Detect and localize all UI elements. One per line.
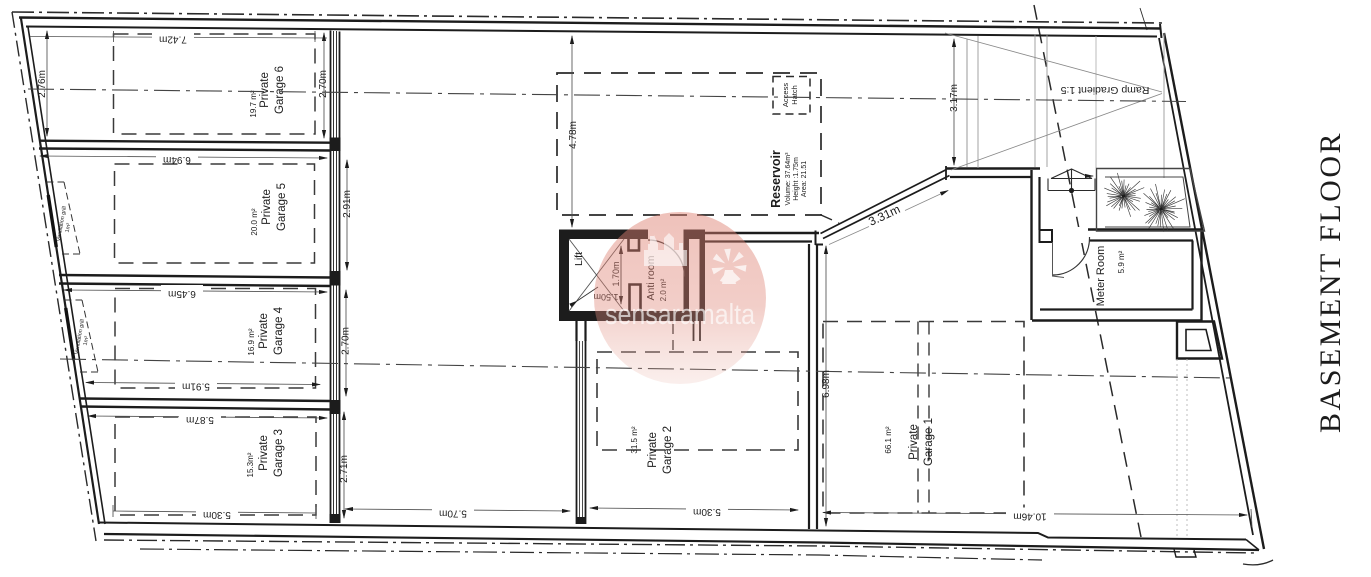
svg-text:66.1 m²: 66.1 m² [884, 426, 893, 453]
svg-text:2.91m: 2.91m [342, 190, 353, 218]
svg-text:Garage 6: Garage 6 [274, 66, 286, 114]
svg-text:Private: Private [261, 189, 273, 225]
svg-text:5.9 m²: 5.9 m² [1117, 250, 1126, 273]
svg-text:Garage 4: Garage 4 [273, 306, 285, 355]
svg-text:Access: Access [781, 83, 790, 107]
svg-text:10.46m: 10.46m [1013, 511, 1046, 522]
svg-text:16.9 m²: 16.9 m² [247, 328, 256, 355]
svg-text:2.70m: 2.70m [341, 327, 352, 355]
svg-text:6.45m: 6.45m [168, 288, 196, 299]
svg-text:Private: Private [908, 424, 920, 460]
svg-text:3.17m: 3.17m [949, 84, 960, 112]
svg-text:19.7 m²: 19.7 m² [249, 90, 258, 117]
svg-text:Lift: Lift [573, 252, 585, 266]
svg-text:Area: 21.51: Area: 21.51 [801, 161, 808, 197]
svg-text:Height :1.75m: Height :1.75m [793, 157, 800, 201]
svg-text:2.76m: 2.76m [37, 70, 48, 98]
svg-text:15.3m²: 15.3m² [246, 452, 255, 477]
svg-text:4.78m: 4.78m [568, 121, 579, 149]
svg-text:Ramp Gradient 1:5: Ramp Gradient 1:5 [1060, 84, 1149, 96]
svg-text:Garage 2: Garage 2 [662, 426, 674, 474]
svg-text:Private: Private [647, 432, 659, 468]
svg-text:5.30m: 5.30m [203, 509, 231, 520]
svg-text:Volume: 37.64m³: Volume: 37.64m³ [785, 152, 792, 206]
svg-text:6.94m: 6.94m [163, 154, 191, 165]
svg-text:7.42m: 7.42m [159, 34, 187, 45]
svg-text:sensaramalta: sensaramalta [605, 299, 756, 331]
svg-text:Hatch: Hatch [790, 85, 799, 105]
svg-text:Garage 3: Garage 3 [273, 429, 285, 477]
svg-text:6.98m: 6.98m [821, 370, 832, 398]
svg-text:Private: Private [258, 435, 270, 471]
svg-text:Garage 1: Garage 1 [923, 418, 935, 466]
svg-text:5.30m: 5.30m [693, 506, 721, 517]
svg-text:2.71m: 2.71m [339, 455, 350, 483]
svg-text:Private: Private [259, 72, 271, 108]
svg-text:20.0 m²: 20.0 m² [250, 208, 259, 235]
svg-text:Garage 5: Garage 5 [276, 183, 288, 231]
svg-text:Reservoir: Reservoir [769, 150, 783, 208]
svg-text:31.5 m²: 31.5 m² [630, 426, 639, 453]
svg-text:Private: Private [258, 313, 270, 349]
svg-text:BASEMENT FLOOR: BASEMENT FLOOR [1314, 131, 1347, 433]
svg-text:5.91m: 5.91m [182, 381, 210, 392]
svg-text:2.70m: 2.70m [318, 70, 329, 98]
svg-text:5.87m: 5.87m [186, 414, 214, 425]
svg-text:5.70m: 5.70m [439, 508, 467, 519]
svg-text:Meter Room: Meter Room [1095, 246, 1107, 307]
